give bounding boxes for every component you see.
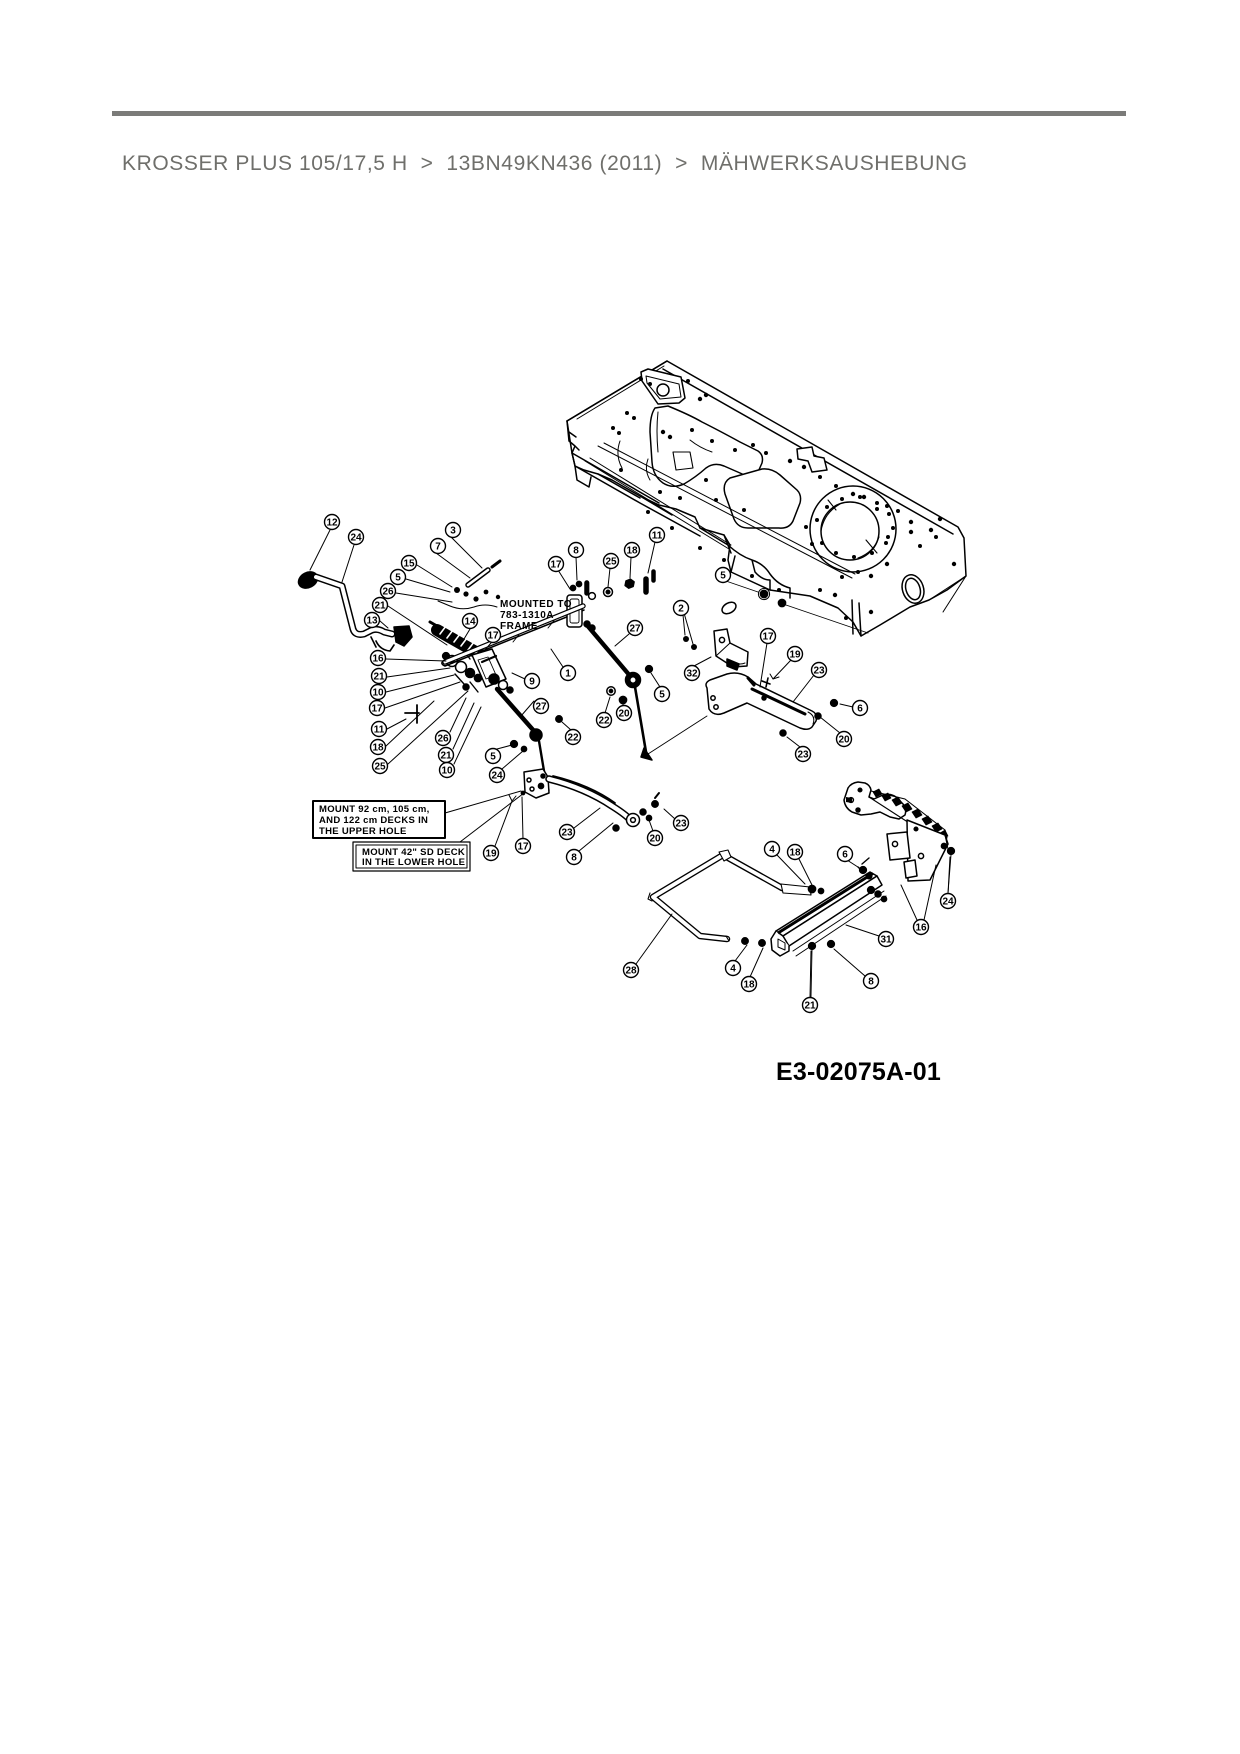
- svg-text:25: 25: [374, 762, 386, 773]
- svg-text:5: 5: [720, 571, 726, 582]
- svg-text:18: 18: [626, 546, 638, 557]
- svg-text:E3-02075A-01: E3-02075A-01: [776, 1058, 941, 1086]
- svg-text:17: 17: [371, 704, 383, 715]
- svg-text:23: 23: [675, 819, 687, 830]
- svg-text:25: 25: [605, 557, 617, 568]
- svg-text:10: 10: [372, 688, 384, 699]
- svg-text:18: 18: [372, 743, 384, 754]
- svg-text:19: 19: [789, 650, 801, 661]
- svg-text:23: 23: [561, 828, 573, 839]
- svg-text:23: 23: [797, 750, 809, 761]
- svg-text:8: 8: [571, 853, 577, 864]
- svg-text:21: 21: [804, 1001, 816, 1012]
- svg-text:AND 122 cm DECKS IN: AND 122 cm DECKS IN: [319, 815, 428, 826]
- svg-text:13: 13: [366, 616, 378, 627]
- svg-text:9: 9: [529, 677, 535, 688]
- svg-text:16: 16: [372, 654, 384, 665]
- svg-text:17: 17: [550, 560, 562, 571]
- svg-text:19: 19: [485, 849, 497, 860]
- svg-text:22: 22: [598, 716, 610, 727]
- svg-text:15: 15: [403, 559, 415, 570]
- svg-text:4: 4: [769, 845, 775, 856]
- svg-text:26: 26: [382, 587, 394, 598]
- svg-text:5: 5: [490, 752, 496, 763]
- svg-text:12: 12: [326, 518, 338, 529]
- svg-text:2: 2: [678, 604, 684, 615]
- svg-text:7: 7: [435, 542, 441, 553]
- svg-text:1: 1: [565, 669, 571, 680]
- svg-text:21: 21: [374, 601, 386, 612]
- svg-text:MOUNTED TO: MOUNTED TO: [500, 599, 572, 610]
- svg-text:26: 26: [437, 734, 449, 745]
- svg-text:5: 5: [395, 573, 401, 584]
- svg-text:23: 23: [813, 666, 825, 677]
- svg-text:6: 6: [857, 704, 863, 715]
- svg-text:18: 18: [789, 848, 801, 859]
- svg-text:20: 20: [838, 735, 850, 746]
- svg-text:THE UPPER HOLE: THE UPPER HOLE: [319, 826, 407, 837]
- svg-text:20: 20: [649, 834, 661, 845]
- svg-text:18: 18: [743, 980, 755, 991]
- svg-text:31: 31: [880, 935, 892, 946]
- svg-text:24: 24: [942, 897, 954, 908]
- svg-text:783-1310A: 783-1310A: [500, 610, 554, 621]
- svg-text:11: 11: [652, 531, 663, 542]
- svg-text:6: 6: [842, 850, 848, 861]
- svg-text:5: 5: [659, 690, 665, 701]
- svg-text:10: 10: [441, 766, 453, 777]
- svg-text:22: 22: [567, 733, 579, 744]
- svg-text:21: 21: [440, 751, 452, 762]
- svg-text:17: 17: [517, 842, 529, 853]
- svg-text:27: 27: [629, 624, 641, 635]
- svg-text:17: 17: [487, 631, 499, 642]
- svg-text:20: 20: [618, 709, 630, 720]
- svg-text:MOUNT 92 cm, 105 cm,: MOUNT 92 cm, 105 cm,: [319, 804, 430, 815]
- svg-text:8: 8: [573, 546, 579, 557]
- svg-text:4: 4: [730, 964, 736, 975]
- svg-text:8: 8: [868, 977, 874, 988]
- svg-text:IN THE LOWER HOLE: IN THE LOWER HOLE: [362, 857, 465, 868]
- svg-text:17: 17: [762, 632, 774, 643]
- svg-text:3: 3: [450, 526, 456, 537]
- svg-text:11: 11: [374, 725, 385, 736]
- svg-text:14: 14: [464, 617, 476, 628]
- svg-text:27: 27: [535, 702, 547, 713]
- svg-text:24: 24: [350, 533, 362, 544]
- svg-text:FRAME: FRAME: [500, 621, 538, 632]
- svg-text:28: 28: [625, 966, 637, 977]
- svg-text:16: 16: [915, 923, 927, 934]
- svg-text:32: 32: [686, 669, 698, 680]
- svg-text:21: 21: [373, 672, 385, 683]
- svg-text:24: 24: [491, 771, 503, 782]
